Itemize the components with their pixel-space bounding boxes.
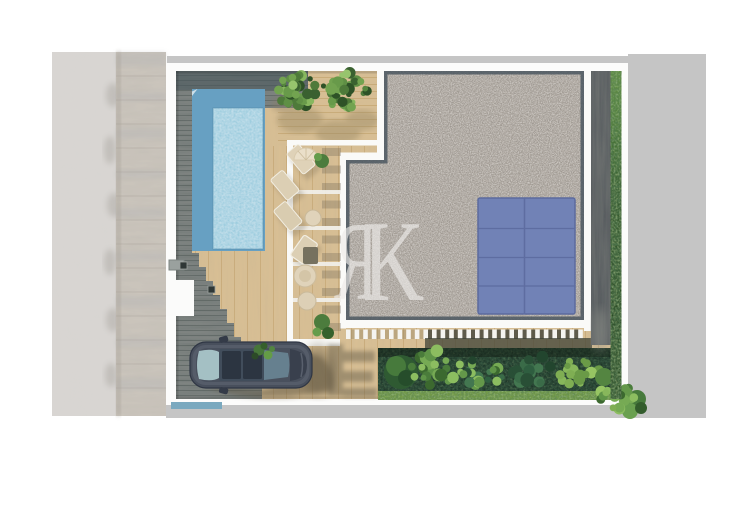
- svg-text:K: K: [363, 198, 425, 325]
